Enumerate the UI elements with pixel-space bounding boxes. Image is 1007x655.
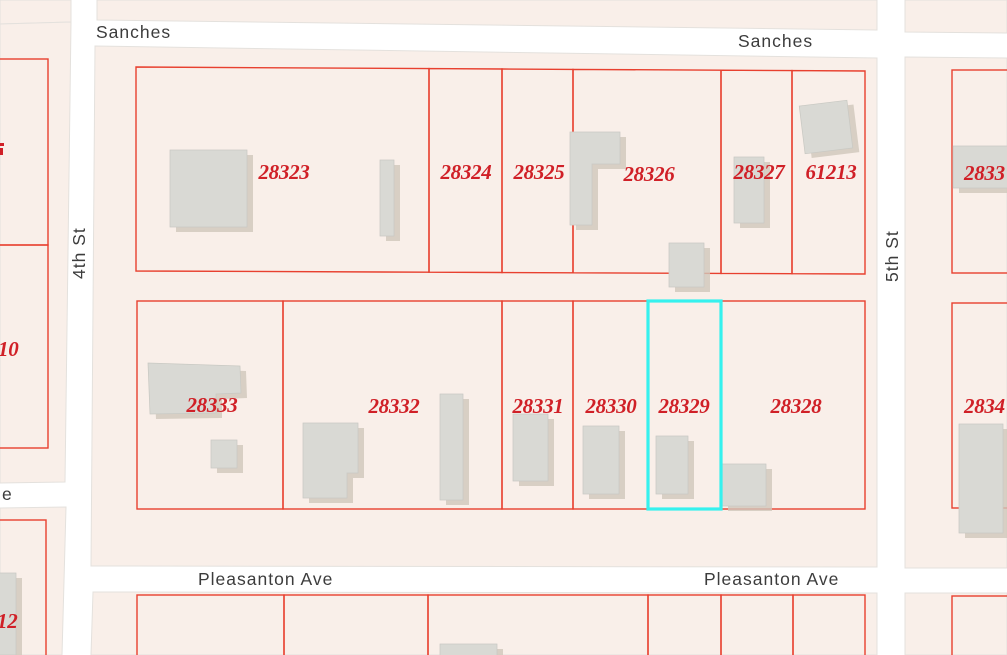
clipped-parcel-number-fragment bbox=[0, 143, 4, 146]
building-footprint bbox=[170, 150, 247, 227]
clipped-parcel-number-fragment bbox=[0, 148, 3, 155]
parcel-label-28332: 28332 bbox=[367, 394, 420, 418]
parcel-label-west-12: 12 bbox=[0, 609, 18, 633]
building-footprint bbox=[440, 644, 497, 655]
street-label-west-avenue-partial: e bbox=[2, 484, 13, 504]
building-rotated-group bbox=[799, 100, 859, 159]
building-footprint bbox=[211, 440, 237, 468]
street-label-pleasanton-east: Pleasanton Ave bbox=[704, 569, 839, 589]
building-footprint bbox=[959, 424, 1003, 533]
building-footprint bbox=[513, 414, 548, 481]
parcel-south-row-2[interactable] bbox=[284, 595, 428, 655]
building-footprint bbox=[583, 426, 619, 494]
parcel-label-east-2833: 2833 bbox=[963, 161, 1005, 185]
parcel-label-28328: 28328 bbox=[769, 394, 822, 418]
parcel-map-canvas: Sanches Sanches 4th St 5th St Pleasanton… bbox=[0, 0, 1007, 655]
parcel-south-row-6[interactable] bbox=[793, 595, 865, 655]
parcel-south-row-4[interactable] bbox=[648, 595, 721, 655]
parcel-label-28329: 28329 bbox=[657, 394, 710, 418]
city-block-north-of-sanches bbox=[97, 0, 877, 30]
parcel-label-28325: 28325 bbox=[512, 160, 564, 184]
building-footprint bbox=[722, 464, 766, 506]
building-footprint bbox=[799, 100, 852, 153]
city-block-northeast-corner bbox=[905, 0, 1007, 33]
building-footprint bbox=[669, 243, 704, 287]
parcel-south-row-5[interactable] bbox=[721, 595, 793, 655]
street-label-sanches-east: Sanches bbox=[738, 31, 813, 51]
parcel-label-28327: 28327 bbox=[732, 160, 786, 184]
parcel-label-28323: 28323 bbox=[257, 160, 309, 184]
street-label-pleasanton-west: Pleasanton Ave bbox=[198, 569, 333, 589]
parcel-label-61213: 61213 bbox=[805, 160, 856, 184]
street-label-sanches-west: Sanches bbox=[96, 22, 171, 42]
parcel-east-edge-lower[interactable] bbox=[952, 596, 1007, 655]
parcel-west-edge-upper[interactable] bbox=[0, 59, 48, 245]
parcel-label-28326: 28326 bbox=[622, 162, 675, 186]
building-footprint bbox=[380, 160, 394, 236]
parcel-south-row-1[interactable] bbox=[137, 595, 284, 655]
parcel-label-28324: 28324 bbox=[439, 160, 491, 184]
street-label-5th-st: 5th St bbox=[882, 230, 902, 282]
building-footprint bbox=[656, 436, 688, 494]
street-label-4th-st: 4th St bbox=[69, 227, 89, 279]
building-footprint bbox=[440, 394, 463, 500]
parcel-label-west-10: 10 bbox=[0, 337, 19, 361]
parcel-label-28331: 28331 bbox=[511, 394, 563, 418]
parcel-label-28333: 28333 bbox=[185, 393, 237, 417]
parcel-label-east-2834: 2834 bbox=[963, 394, 1005, 418]
parcel-map-viewport: Sanches Sanches 4th St 5th St Pleasanton… bbox=[0, 0, 1007, 655]
parcel-label-28330: 28330 bbox=[584, 394, 637, 418]
city-block-northwest-corner bbox=[0, 0, 71, 24]
